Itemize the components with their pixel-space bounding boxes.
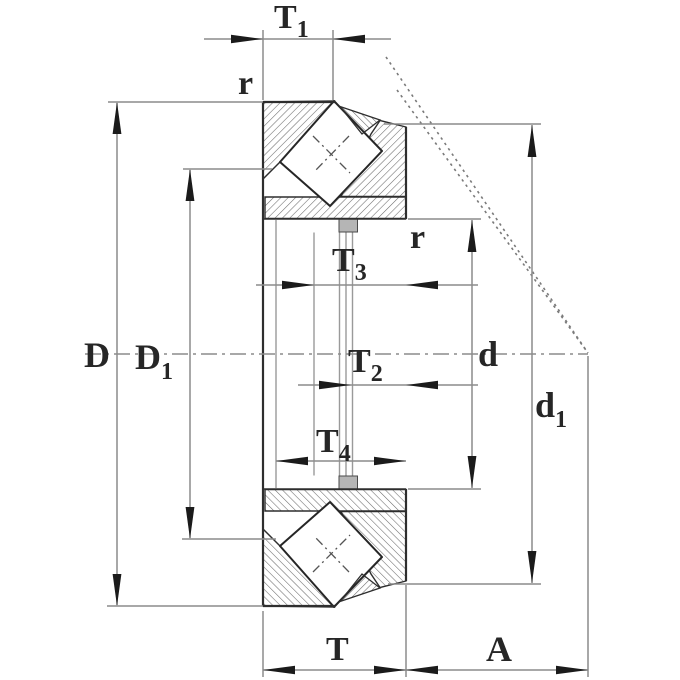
- label-d1: d1: [535, 385, 567, 433]
- bearing-drawing-page: T1 r D D1 T3 r T2 d d1 T4 T A: [0, 0, 680, 680]
- sphere-center-construction-line-inner: [397, 90, 588, 353]
- top-half-section: [263, 101, 406, 232]
- label-D: D: [84, 335, 110, 375]
- label-D1: D1: [135, 337, 173, 385]
- dimension-T3: [256, 281, 478, 289]
- label-A: A: [486, 629, 512, 669]
- sphere-center-construction-line-outer: [386, 57, 588, 353]
- label-T1: T1: [274, 0, 309, 43]
- bearing-cross-section-drawing: T1 r D D1 T3 r T2 d d1 T4 T A: [0, 0, 680, 680]
- label-T: T: [326, 631, 349, 668]
- label-d: d: [478, 334, 498, 374]
- label-T2: T2: [348, 343, 383, 387]
- bottom-half-section: [263, 476, 406, 607]
- label-T3: T3: [332, 242, 367, 286]
- dimension-T2: [298, 381, 478, 389]
- label-r-right: r: [410, 219, 425, 256]
- label-r-top: r: [238, 65, 253, 102]
